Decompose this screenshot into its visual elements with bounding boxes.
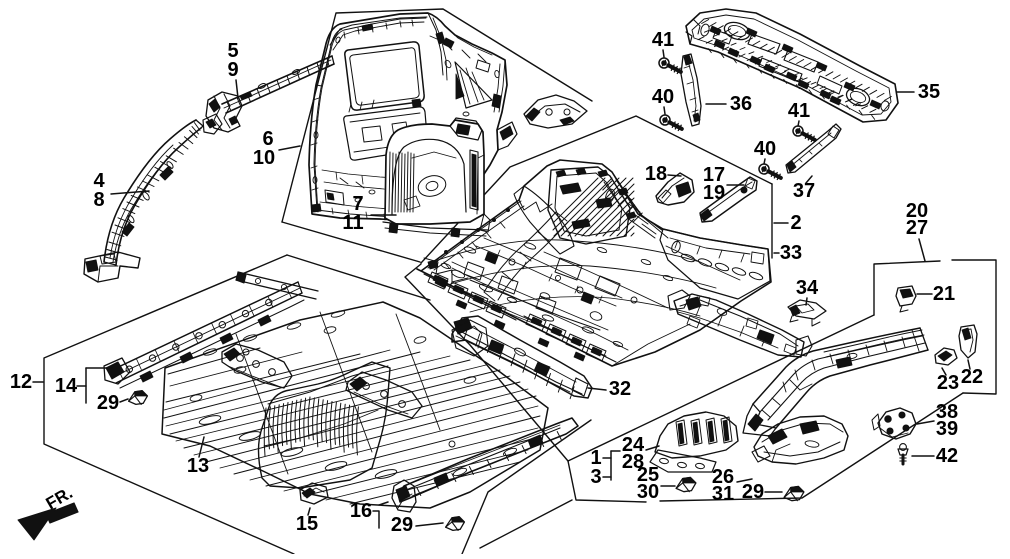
svg-text:27: 27	[906, 217, 928, 239]
svg-text:29: 29	[97, 392, 119, 414]
svg-text:41: 41	[788, 100, 810, 122]
svg-text:8: 8	[93, 189, 104, 211]
svg-text:18: 18	[645, 163, 667, 185]
svg-text:36: 36	[730, 93, 752, 115]
svg-text:29: 29	[391, 514, 413, 536]
svg-text:15: 15	[296, 513, 318, 535]
svg-text:2: 2	[790, 212, 801, 234]
svg-text:32: 32	[609, 378, 631, 400]
svg-text:39: 39	[936, 418, 958, 440]
svg-text:31: 31	[712, 483, 734, 505]
svg-text:21: 21	[933, 283, 955, 305]
svg-text:33: 33	[780, 242, 802, 264]
svg-text:19: 19	[703, 182, 725, 204]
svg-text:13: 13	[187, 455, 209, 477]
svg-text:14: 14	[55, 375, 78, 397]
svg-text:34: 34	[796, 277, 819, 299]
svg-text:9: 9	[227, 59, 238, 81]
svg-text:23: 23	[937, 372, 959, 394]
svg-text:40: 40	[754, 138, 776, 160]
svg-text:30: 30	[637, 481, 659, 503]
svg-text:3: 3	[590, 466, 601, 488]
svg-text:16: 16	[350, 500, 372, 522]
svg-text:35: 35	[918, 81, 940, 103]
svg-text:40: 40	[652, 86, 674, 108]
svg-text:42: 42	[936, 445, 958, 467]
svg-text:29: 29	[742, 481, 764, 503]
svg-text:37: 37	[793, 180, 815, 202]
svg-text:12: 12	[10, 371, 32, 393]
svg-text:11: 11	[342, 212, 363, 234]
svg-text:41: 41	[652, 29, 674, 51]
svg-text:22: 22	[961, 366, 983, 388]
svg-text:10: 10	[253, 147, 275, 169]
